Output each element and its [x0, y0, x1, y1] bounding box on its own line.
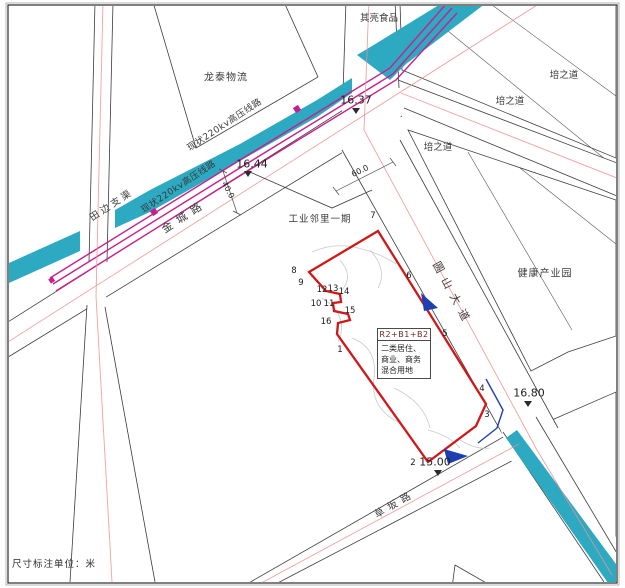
vertex-label-4: 4	[479, 384, 484, 394]
vertex-label-6: 6	[406, 271, 411, 281]
parcel-label-industrial-phase1: 工业邻里一期	[288, 211, 351, 225]
map-drawing	[0, 0, 625, 588]
vertex-label-1: 1	[337, 345, 342, 355]
vertex-label-5: 5	[442, 329, 447, 339]
planning-map: 其亮食品 龙泰物流 培之道 培之道 培之道 健康产业园 工业邻里一期 现状220…	[0, 0, 625, 588]
parcel-label-peizhidao-2: 培之道	[496, 93, 525, 107]
vertex-label-11: 11	[324, 299, 335, 309]
parcel-label-health-park: 健康产业园	[518, 265, 573, 280]
parcel-label-qiliang: 其亮食品	[360, 10, 398, 24]
vertex-label-15: 15	[345, 306, 356, 316]
vertex-label-12: 12	[317, 285, 328, 295]
land-use-code: R2+B1+B2	[378, 329, 430, 341]
elevation-16-37: 16.37	[340, 94, 372, 107]
vertex-label-7: 7	[370, 211, 375, 221]
units-caption: 尺寸标注单位：米	[12, 556, 96, 570]
elevation-15-00: 15.00	[419, 456, 451, 469]
parcel-label-peizhidao-3: 培之道	[424, 139, 453, 153]
vertex-label-3: 3	[484, 410, 489, 420]
parcel-label-longtai: 龙泰物流	[204, 69, 248, 84]
vertex-label-13: 13	[328, 284, 339, 294]
land-use-description: 二类居住、商业、商务混合用地	[378, 341, 430, 378]
vertex-label-8: 8	[291, 266, 296, 276]
land-use-label-box: R2+B1+B2 二类居住、商业、商务混合用地	[377, 328, 431, 379]
vertex-label-16: 16	[321, 317, 332, 327]
elevation-16-80: 16.80	[513, 387, 545, 400]
vertex-label-9: 9	[298, 278, 303, 288]
vertex-label-14: 14	[339, 287, 350, 297]
vertex-label-2: 2	[410, 458, 415, 468]
elevation-16-44: 16.44	[236, 158, 268, 171]
vertex-label-10: 10	[311, 299, 322, 309]
parcel-label-peizhidao-1: 培之道	[550, 67, 579, 81]
